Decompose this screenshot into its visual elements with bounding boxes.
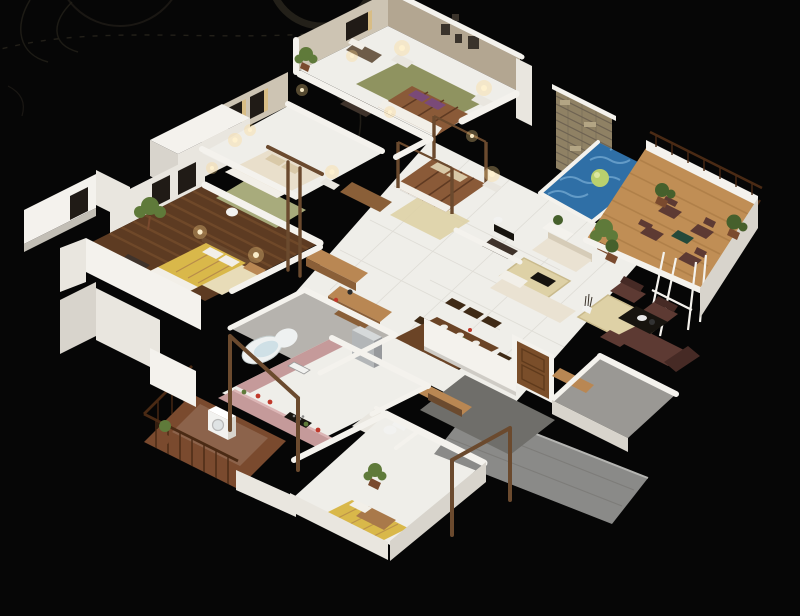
powder-toilet [494, 217, 503, 223]
pool-ball [591, 169, 609, 187]
dark-bowl [649, 319, 655, 325]
pool-ball-highlight [594, 172, 600, 178]
wc-toilet [226, 208, 238, 217]
floorplan-render [0, 0, 800, 616]
toilet2 [384, 426, 397, 435]
white-bowl [637, 315, 647, 321]
guest-curtain [368, 10, 372, 31]
render-canvas: { "meta": { "description": "Photorealist… [0, 0, 800, 616]
